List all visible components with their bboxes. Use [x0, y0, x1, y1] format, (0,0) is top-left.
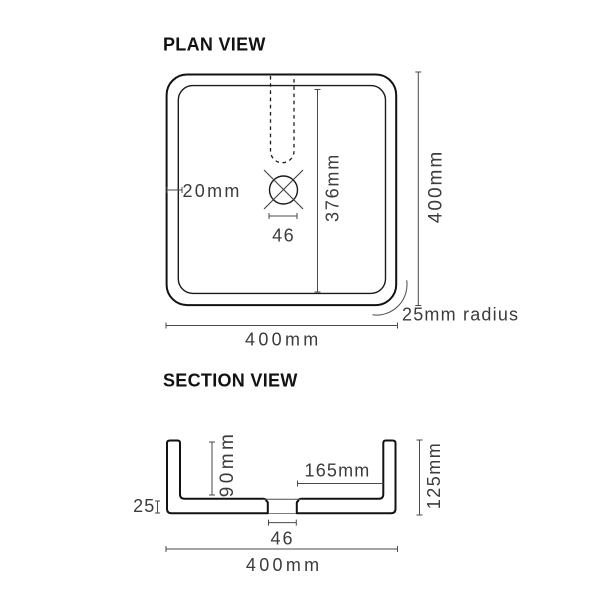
svg-text:46: 46 [270, 529, 294, 549]
svg-text:400mm: 400mm [246, 555, 323, 575]
svg-text:125mm: 125mm [424, 442, 444, 510]
svg-text:SECTION VIEW: SECTION VIEW [163, 371, 298, 391]
svg-text:20mm: 20mm [183, 181, 242, 201]
svg-text:376mm: 376mm [323, 153, 343, 222]
svg-text:25mm radius: 25mm radius [402, 305, 519, 325]
svg-text:46: 46 [272, 225, 295, 245]
svg-text:90mm: 90mm [217, 431, 238, 497]
svg-text:PLAN VIEW: PLAN VIEW [163, 35, 266, 55]
svg-text:400mm: 400mm [245, 330, 322, 350]
svg-text:400mm: 400mm [426, 150, 447, 223]
svg-text:25: 25 [133, 496, 155, 516]
svg-text:165mm: 165mm [304, 461, 370, 481]
